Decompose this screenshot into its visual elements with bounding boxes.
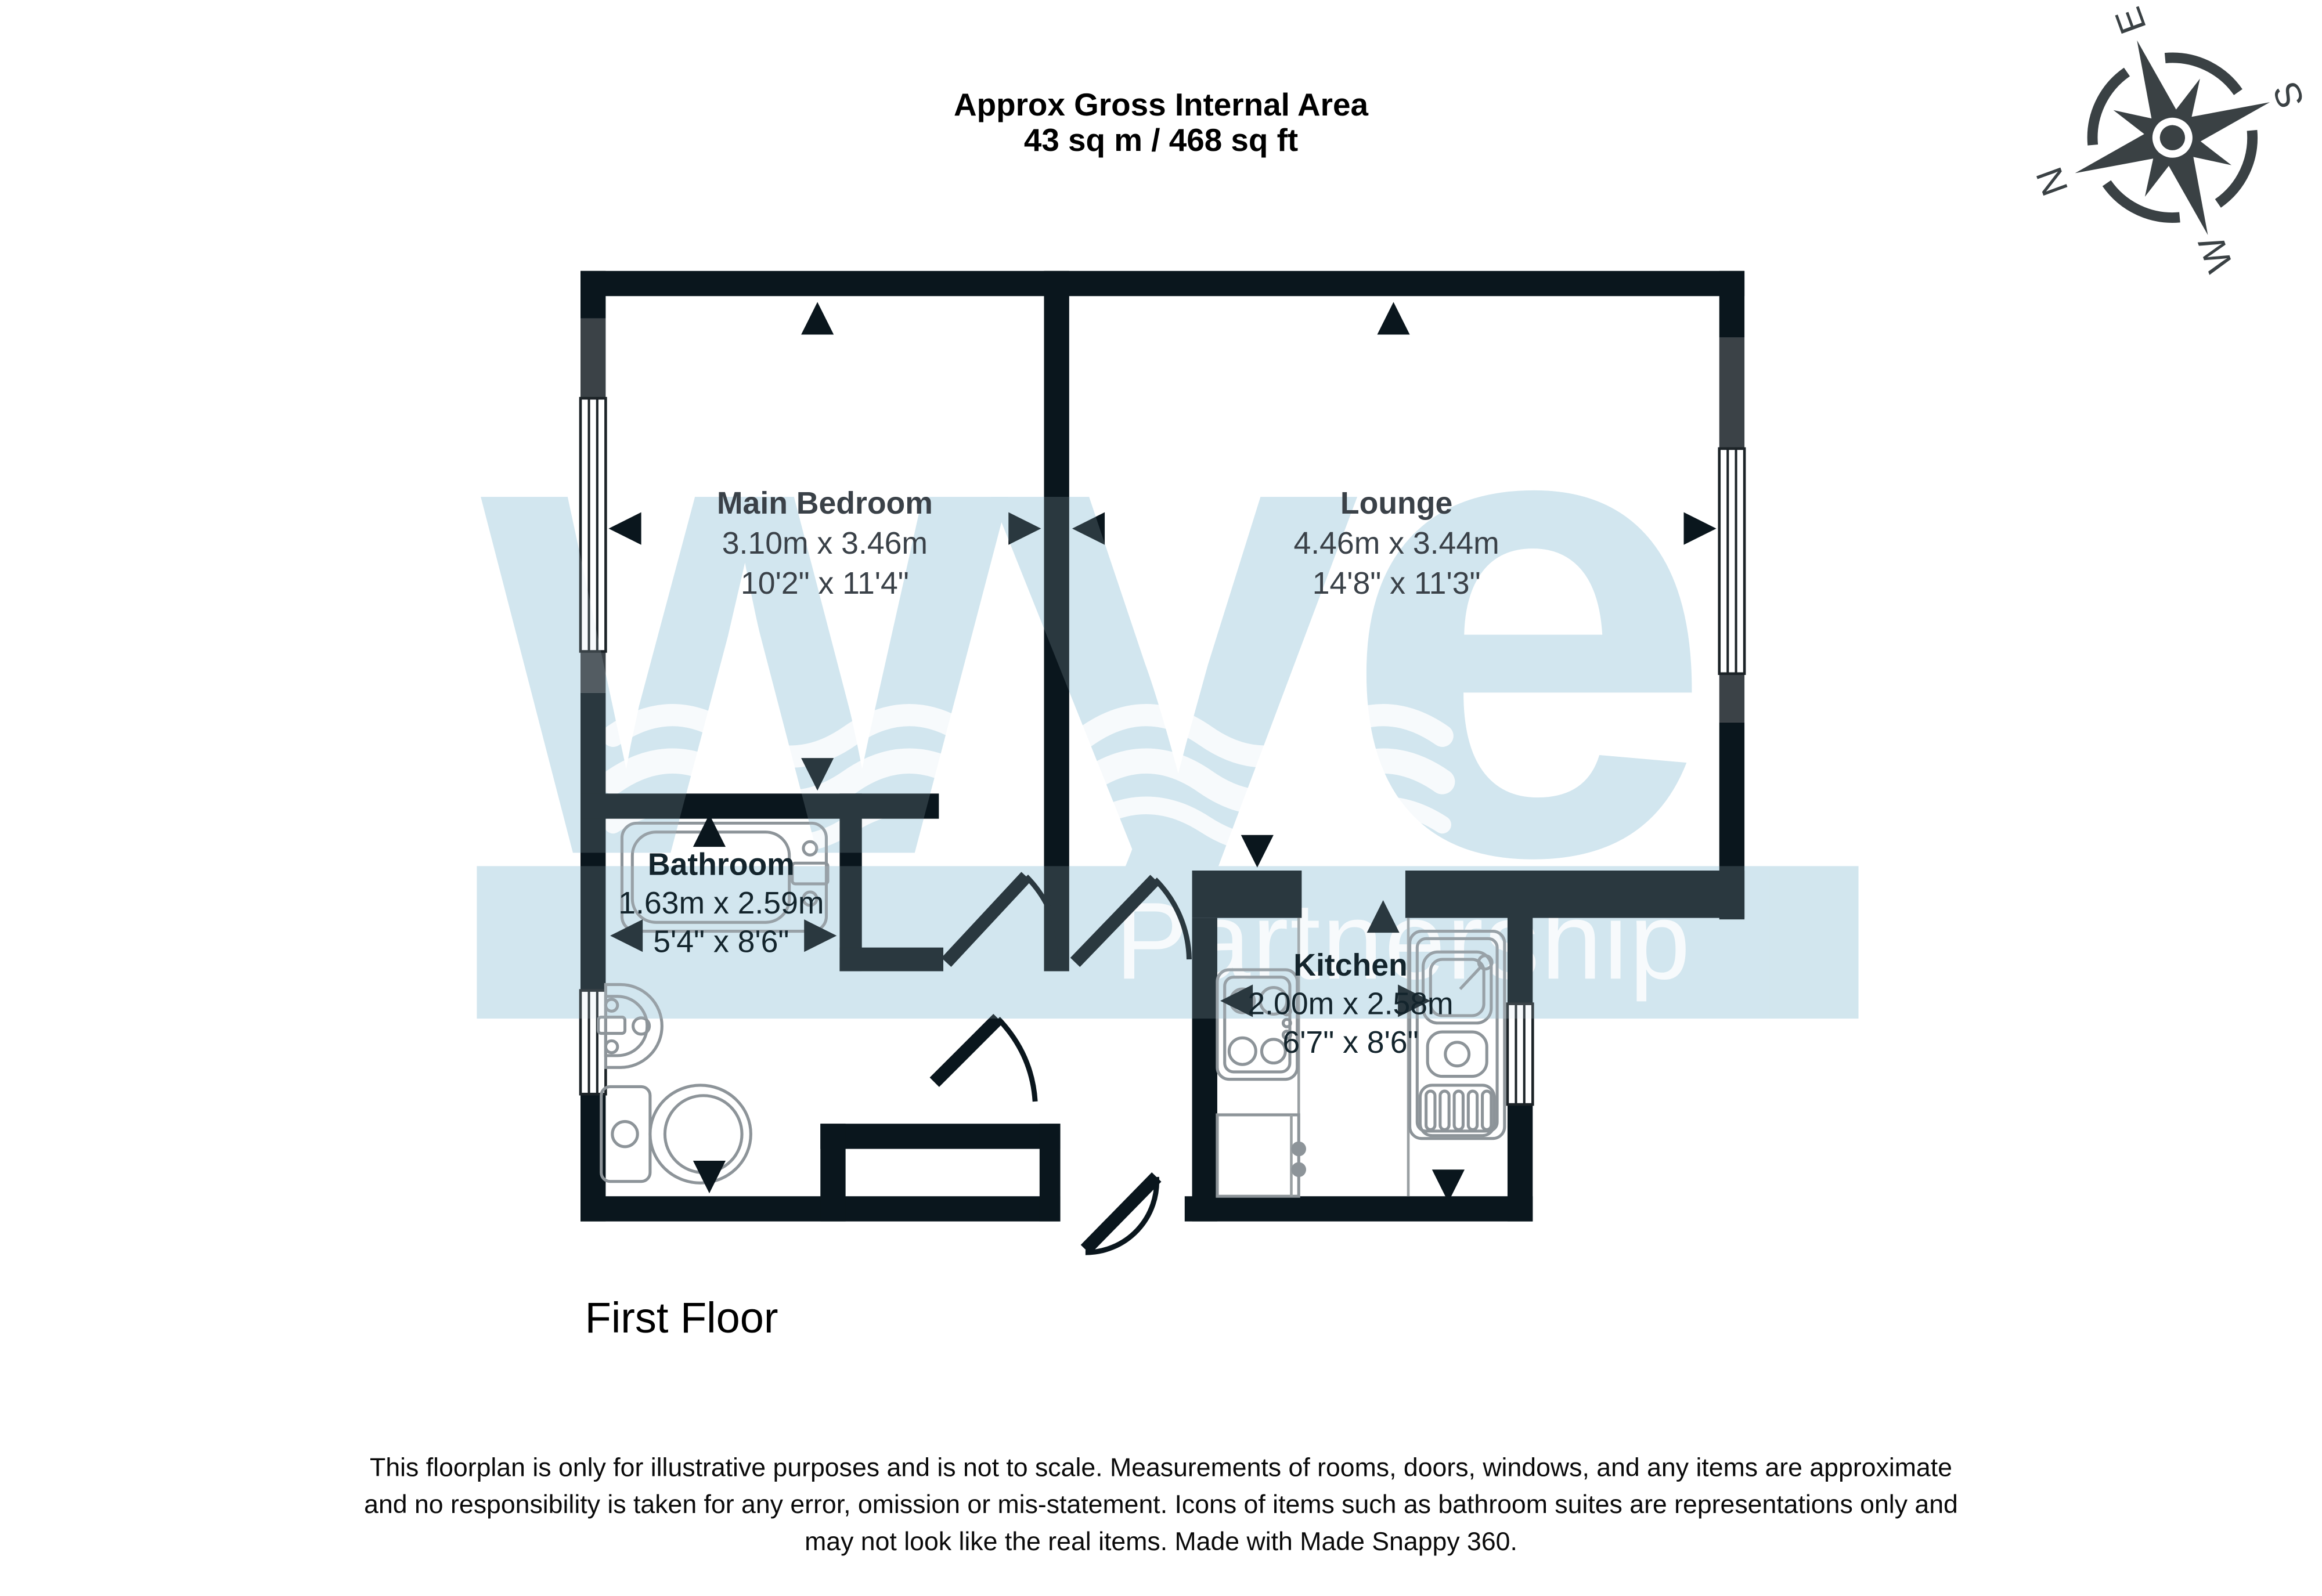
room-imperial: 10'2" x 11'4" — [741, 566, 909, 601]
room-imperial: 6'7" x 8'6" — [1282, 1026, 1418, 1060]
knob — [1291, 1162, 1306, 1178]
wall-closet-top — [820, 1124, 1060, 1149]
oven-unit-icon — [1217, 1115, 1306, 1196]
disclaimer: This floorplan is only for illustrative … — [364, 1453, 1958, 1556]
compass-w: W — [2190, 231, 2241, 278]
room-imperial: 14'8" x 11'3" — [1313, 566, 1481, 601]
room-label-main-bedroom: Main Bedroom 3.10m x 3.46m 10'2" x 11'4" — [717, 486, 933, 601]
knob — [1291, 1142, 1306, 1157]
wall-lounge-right-jamb — [1719, 338, 1744, 449]
room-name: Main Bedroom — [717, 486, 933, 521]
toilet-icon — [601, 1085, 751, 1183]
wall-lounge-right-jamb — [1719, 674, 1744, 723]
room-name: Bathroom — [648, 848, 795, 882]
bathroom-door — [935, 1019, 1035, 1102]
compass-e: E — [2107, 2, 2154, 39]
floorplan: wye Main Bedroom 3.10m x 3.46m 10'2" x 1… — [472, 243, 1858, 1252]
compass-n: N — [2028, 162, 2076, 201]
header: Approx Gross Internal Area 43 sq m / 468… — [954, 86, 1368, 158]
compass-rose-icon: N E S W — [1985, 0, 2322, 322]
disclaimer-line1: This floorplan is only for illustrative … — [370, 1453, 1952, 1482]
floorplan-canvas: wye Partnership — [0, 0, 2322, 1596]
room-name: Kitchen — [1293, 948, 1407, 983]
room-name: Lounge — [1340, 486, 1452, 521]
room-metric: 1.63m x 2.59m — [618, 886, 824, 920]
wall-bottom — [1185, 1196, 1533, 1221]
compass-s: S — [2265, 77, 2312, 114]
page-title-line1: Approx Gross Internal Area — [954, 86, 1368, 122]
disclaimer-line2: and no responsibility is taken for any e… — [364, 1490, 1958, 1519]
room-metric: 2.00m x 2.58m — [1247, 987, 1453, 1021]
floor-label: First Floor — [585, 1294, 778, 1342]
wall-lounge-right — [1719, 271, 1744, 338]
room-metric: 3.10m x 3.46m — [722, 526, 928, 561]
lounge-window — [1719, 449, 1744, 674]
wall-closet-right — [1040, 1124, 1061, 1221]
page-title-line2: 43 sq m / 468 sq ft — [1024, 122, 1298, 158]
wall-closet-left — [820, 1124, 845, 1221]
arrow-down — [693, 1161, 726, 1193]
entry-door — [1086, 1177, 1157, 1252]
room-metric: 4.46m x 3.44m — [1293, 526, 1499, 561]
room-imperial: 5'4" x 8'6" — [653, 925, 789, 959]
wall-kitchen-right — [1508, 1104, 1533, 1222]
disclaimer-line3: may not look like the real items. Made w… — [805, 1528, 1517, 1556]
kitchen-window — [1508, 1004, 1533, 1104]
